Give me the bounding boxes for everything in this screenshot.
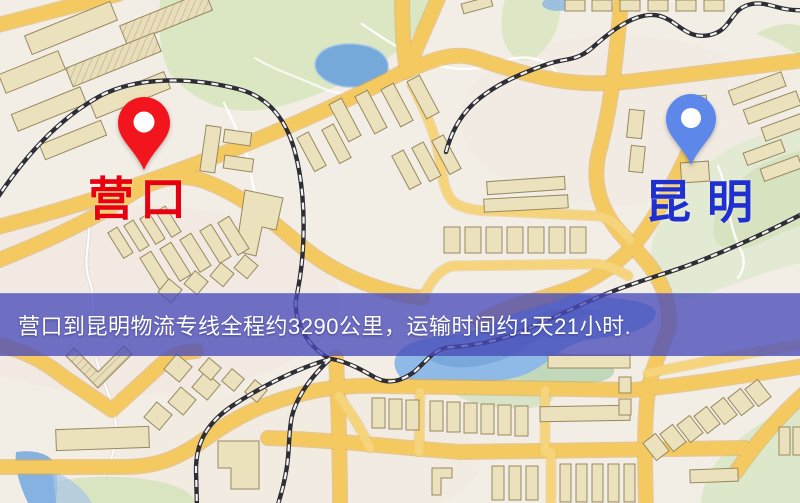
- origin-pin-icon[interactable]: [116, 96, 172, 172]
- destination-pin-body: [666, 94, 716, 165]
- origin-pin-body: [118, 97, 170, 170]
- destination-pin-hole: [681, 108, 701, 128]
- origin-pin-hole: [134, 112, 155, 133]
- origin-city-label: 营口: [88, 176, 192, 222]
- map-background: [0, 0, 800, 503]
- destination-pin-icon[interactable]: [664, 93, 718, 167]
- destination-city-label: 昆明: [645, 179, 769, 225]
- route-info-text: 营口到昆明物流专线全程约3290公里，运输时间约1天21小时.: [0, 309, 631, 341]
- map-container[interactable]: 营口 昆明 营口到昆明物流专线全程约3290公里，运输时间约1天21小时.: [0, 0, 800, 503]
- route-info-banner: 营口到昆明物流专线全程约3290公里，运输时间约1天21小时.: [0, 293, 800, 356]
